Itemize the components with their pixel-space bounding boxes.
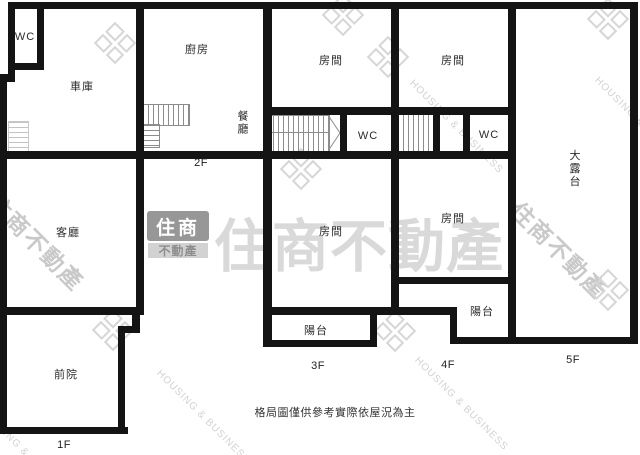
room-label-terrace-5f: 大露台 [568,150,580,189]
floor-label-1f: 1F [57,439,71,451]
room-label-wc-4f: WC [479,129,499,141]
room-label-garage: 車庫 [70,78,94,94]
watermark-diagonal-text: 住商不動產 [0,185,93,297]
wall-segment [8,63,44,70]
room-label-room-3f-mid: 房間 [319,223,343,239]
wall-segment [450,337,638,344]
wall-segment [0,74,7,434]
room-label-wc-3f: WC [358,130,378,142]
wall-segment [263,307,457,315]
watermark-en-text: HOUSING & BUSINESS [412,355,510,453]
wall-segment [0,427,128,434]
wall-segment [136,2,144,315]
room-label-front-yard: 前院 [54,366,78,382]
room-label-room-3f-top: 房間 [319,52,343,68]
wall-segment [463,107,470,159]
stairs-3f [267,115,330,153]
room-label-room-4f-top: 房間 [441,52,465,68]
watermark-logo-subtext: 不動產 [148,243,208,258]
stairs-3f-midline [267,132,328,133]
wall-segment [8,2,638,9]
disclaimer-text: 格局圖僅供參考實際依屋況為主 [255,404,416,420]
wall-segment [340,107,347,159]
wall-segment [263,340,377,347]
room-label-wc-1f: WC [15,31,35,43]
watermark-diamond-icon [374,310,416,352]
floor-label-5f: 5F [566,354,580,366]
wall-segment [398,277,516,284]
watermark-en-text: HOUSING & BUSINESS [154,368,252,455]
floor-label-4f: 4F [441,359,455,371]
stairs-1f [8,121,29,154]
wall-segment [0,307,144,315]
room-label-living: 客廳 [56,224,80,240]
wall-segment [37,8,44,70]
stairs-2f-upper [142,104,190,126]
wall-segment [118,326,125,434]
watermark-logo: 住商 [147,211,209,241]
wall-segment [630,2,638,344]
wall-segment [433,107,440,159]
room-label-balcony-4f: 陽台 [470,303,494,319]
room-label-room-4f-mid: 房間 [441,210,465,226]
floor-label-3f: 3F [311,360,325,372]
wall-segment [391,2,399,313]
wall-segment [263,2,272,347]
watermark-diamond-icon [94,22,136,64]
floorplan: 住商 不動產 住商不動產 住商不動產 住商不動產 HOUSING & BUSIN… [0,0,640,455]
watermark-diamond-icon [367,36,409,78]
floor-label-2f: 2F [194,157,208,169]
stairs-4f [397,113,435,153]
wall-segment [263,107,516,115]
room-label-balcony-3f: 陽台 [304,322,328,338]
wall-segment [508,2,516,344]
room-label-kitchen: 廚房 [185,41,209,57]
stairs-2f-lower [142,124,160,148]
room-label-dining: 餐廳 [236,110,248,136]
